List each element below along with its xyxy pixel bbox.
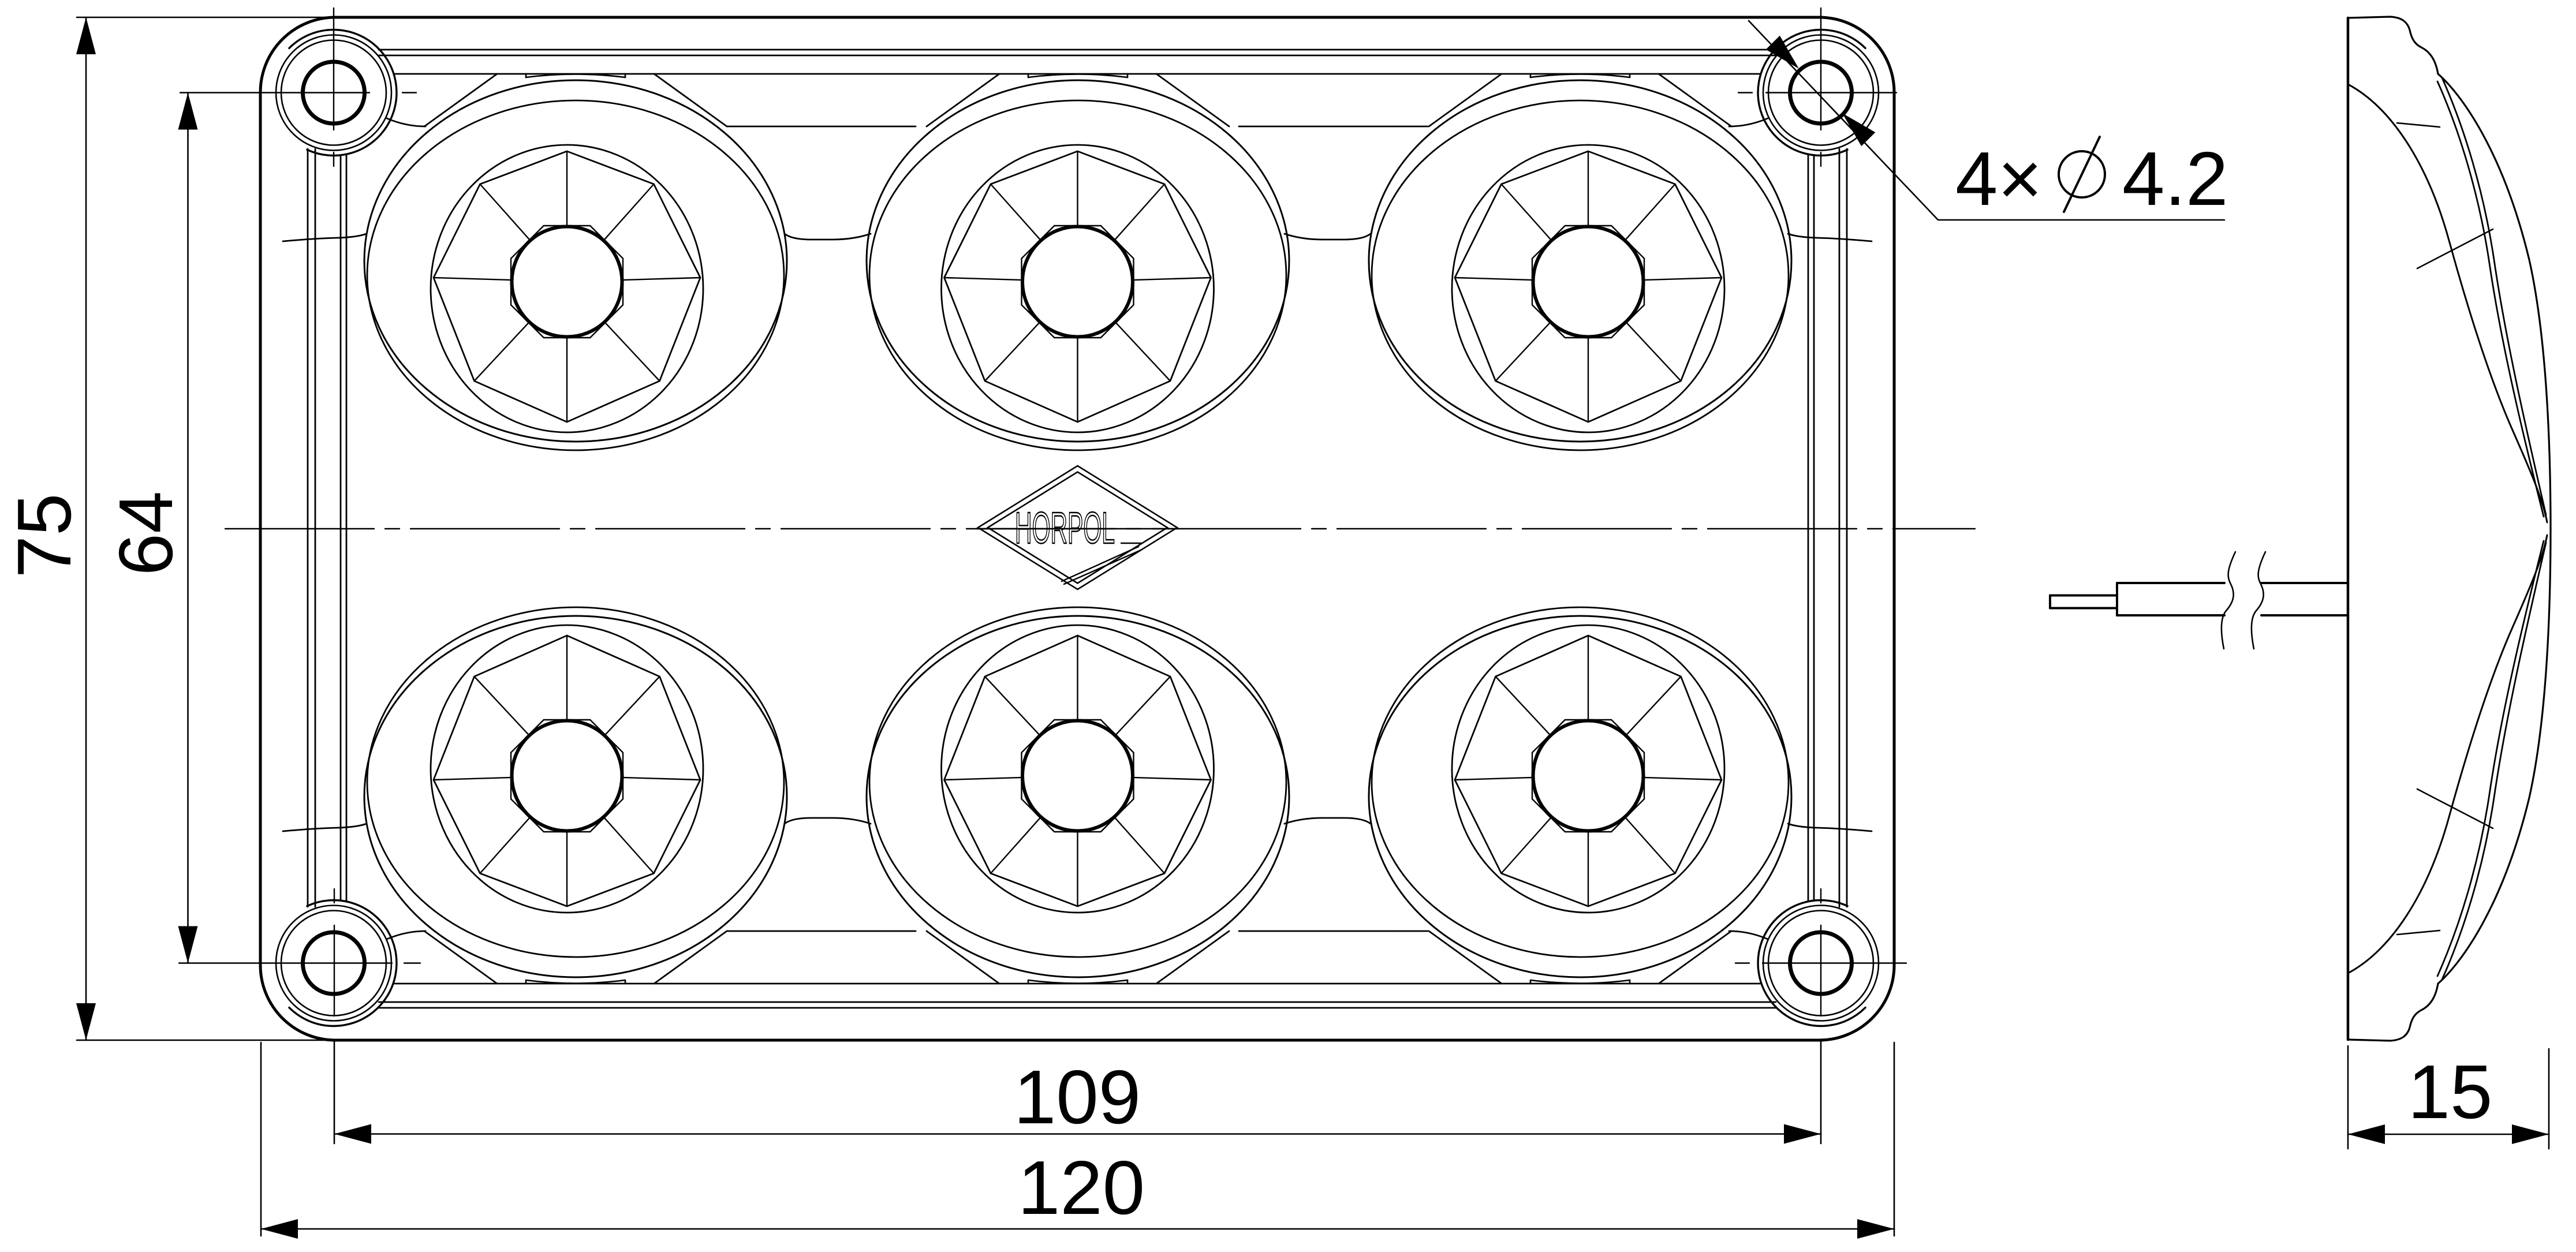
- svg-text:109: 109: [1014, 1055, 1141, 1139]
- svg-text:120: 120: [1018, 1145, 1145, 1230]
- svg-text:15: 15: [2408, 1049, 2493, 1134]
- svg-text:4×: 4×: [1955, 136, 2043, 221]
- svg-text:75: 75: [2, 494, 87, 578]
- svg-text:64: 64: [103, 491, 188, 576]
- svg-text:4.2: 4.2: [2122, 136, 2228, 221]
